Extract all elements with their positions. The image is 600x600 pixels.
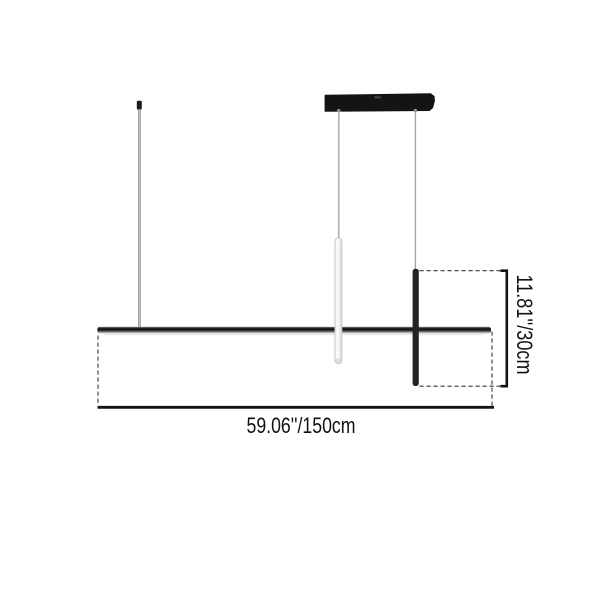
svg-text:11.81''/30cm: 11.81''/30cm (512, 275, 537, 375)
svg-text:59.06''/150cm: 59.06''/150cm (247, 413, 356, 438)
